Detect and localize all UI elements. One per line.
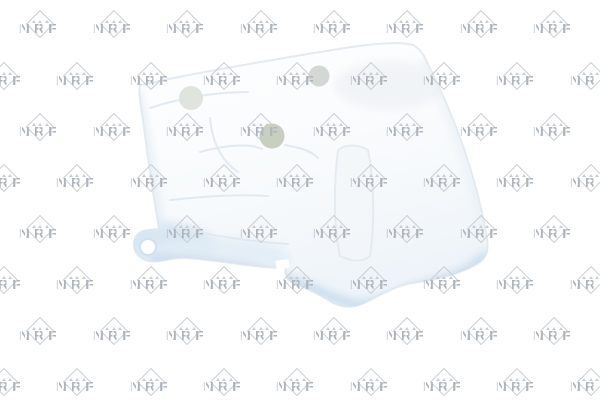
tank-center-hole-circle [260, 124, 285, 149]
upper-right-shade [335, 61, 445, 109]
tank-mounting-tab-hole [140, 239, 156, 255]
tank-bottom-notch [276, 259, 290, 270]
tank-top-recess-circle [179, 86, 203, 110]
seam-vertical-channel [335, 146, 373, 261]
product-image-canvas: NRFNRFNRFNRFNRFNRFNRFNRFNRFNRFNRFNRFNRFN… [0, 0, 600, 400]
tank-filler-recess-circle [309, 66, 330, 87]
product-photo-expansion-tank [0, 0, 600, 400]
